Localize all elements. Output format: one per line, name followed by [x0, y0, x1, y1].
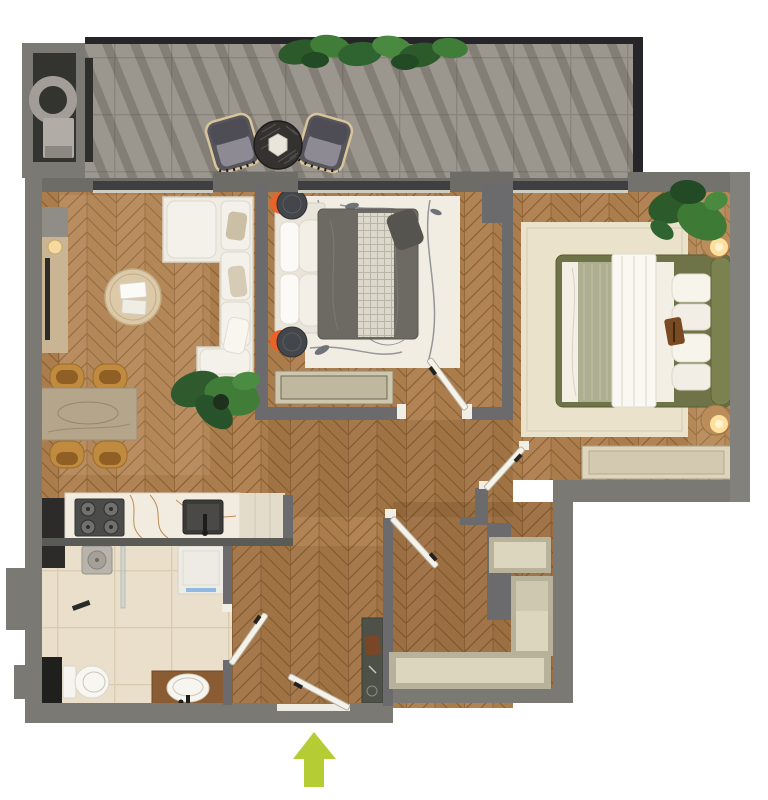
wall-bathroom-north	[42, 538, 293, 546]
nightstand-round	[277, 327, 307, 357]
dining-table	[40, 388, 137, 440]
dining-chair	[93, 364, 127, 391]
balcony-table	[254, 121, 302, 169]
lamp-bulb	[715, 243, 723, 251]
floor-plan-canvas	[0, 0, 768, 800]
east-wall-closet	[553, 502, 573, 703]
tall-cabinet	[42, 498, 65, 568]
wall-kitchen-end	[283, 495, 293, 545]
bench-inner	[589, 451, 724, 474]
window-sill	[93, 190, 213, 193]
pillow	[280, 274, 299, 324]
counter-end-panel	[240, 493, 285, 540]
dining-chair	[50, 441, 84, 468]
wall-bedroom1-south	[255, 407, 400, 420]
window-living	[93, 181, 213, 190]
floor-plan	[0, 0, 768, 800]
table-lamp	[48, 240, 62, 254]
west-wall	[25, 178, 42, 710]
balcony-railing-right	[633, 37, 643, 178]
window-bedroom-2	[513, 181, 628, 190]
faucet-base	[202, 530, 208, 536]
east-wall	[730, 172, 750, 502]
bed-1	[275, 203, 426, 339]
window-sill	[513, 190, 628, 193]
console-shelf	[42, 207, 68, 237]
coffee-table	[105, 269, 161, 325]
south-wall-closet	[390, 688, 573, 703]
pillow	[280, 222, 299, 272]
dining-chair	[50, 364, 84, 391]
bench-inner	[281, 376, 387, 399]
plant-pot	[213, 394, 229, 410]
bed-2	[556, 254, 731, 407]
wall-closet-north-b	[460, 517, 488, 525]
west-wall-pier	[6, 568, 27, 630]
washer-indicator	[186, 588, 216, 592]
kitchen-sink	[183, 500, 223, 536]
vanity	[152, 671, 224, 708]
tv-screen	[45, 258, 50, 340]
toilet-bowl	[75, 666, 109, 698]
book	[119, 282, 146, 299]
ac-unit-base	[45, 146, 72, 158]
nightstand-round	[277, 189, 307, 219]
utility-shaft	[22, 43, 85, 178]
sofa-pillow-tan	[225, 211, 248, 241]
entry-hall	[362, 618, 383, 703]
window-sill	[298, 190, 450, 193]
west-wall-pier	[14, 665, 33, 699]
washing-machine	[178, 546, 224, 594]
book	[122, 299, 147, 315]
wall-bedroom2-west	[502, 183, 513, 418]
wall-bathroom-east-stub	[223, 660, 232, 705]
notebook	[364, 635, 381, 656]
faucet	[203, 514, 207, 532]
shower-glass	[121, 546, 125, 608]
bed-runner-checkered	[358, 213, 394, 337]
toilet	[63, 666, 109, 698]
entry-console	[362, 618, 383, 703]
tall-shelf-shadow	[516, 581, 548, 611]
shower-head-center	[95, 558, 99, 562]
toilet-tank	[63, 666, 76, 698]
dining-chair	[93, 441, 127, 468]
long-shelf-inner	[396, 658, 544, 683]
washer-body	[178, 546, 224, 594]
shelf-niche-inner	[494, 542, 546, 568]
cooktop	[75, 499, 124, 536]
lamp-bulb	[715, 420, 723, 428]
headboard-olive	[711, 257, 731, 405]
storage-bench-2	[582, 446, 731, 479]
bathroom-niche	[40, 657, 62, 706]
entrance-arrow	[293, 732, 336, 787]
wall-bathroom-east	[223, 546, 232, 606]
storage-bench-1	[275, 371, 393, 404]
sofa-chaise-cushion	[167, 201, 216, 258]
nightstand-lamp-bottom	[701, 405, 731, 435]
south-wall-bedroom-2	[553, 480, 750, 502]
balcony-divider	[85, 58, 93, 162]
window-bedroom-1	[298, 181, 450, 190]
